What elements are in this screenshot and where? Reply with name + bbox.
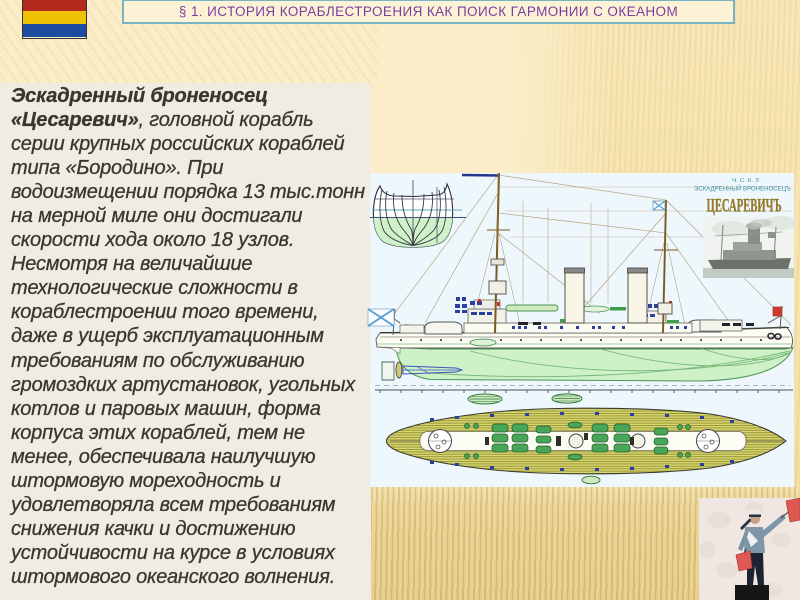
svg-text:Ч. С. К. З: Ч. С. К. З — [732, 178, 760, 184]
svg-text:ЦЕСАРЕВИЧЪ: ЦЕСАРЕВИЧЪ — [707, 195, 782, 216]
svg-text:ЭСКАДРЕННЫЙ БРОНЕНОСЕЦЪ: ЭСКАДРЕННЫЙ БРОНЕНОСЕЦЪ — [694, 184, 791, 193]
